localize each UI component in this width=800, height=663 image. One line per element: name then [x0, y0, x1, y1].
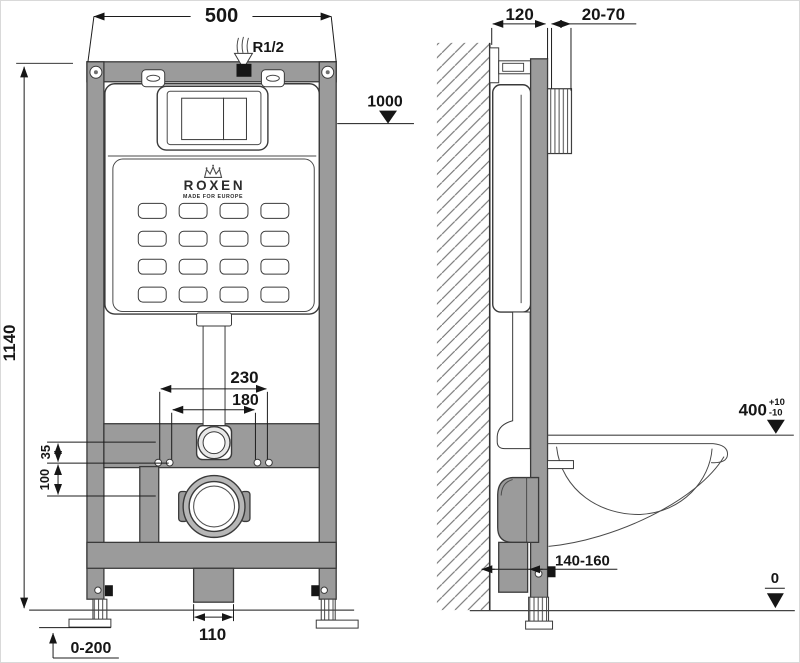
grid-cell	[179, 259, 207, 274]
floor-level-label: 0	[771, 570, 779, 587]
top-bracket	[490, 48, 531, 83]
floor-level-marker	[767, 593, 784, 608]
cistern-module: ROXEN MADE FOR EUROPE	[105, 70, 319, 427]
side-leg-pin	[535, 570, 542, 577]
grid-cell	[220, 231, 248, 246]
crossbar-lower	[87, 542, 336, 568]
bowl-outer-curve	[549, 457, 724, 547]
inner-strut	[140, 467, 159, 544]
center-column	[194, 568, 234, 602]
seat-level-marker	[767, 420, 785, 434]
dim-2070-label: 20-70	[582, 5, 625, 24]
cistern-side	[493, 85, 531, 312]
foot-plate-left	[69, 619, 111, 627]
installation-drawing: ROXEN MADE FOR EUROPE	[1, 1, 799, 662]
dim-500-label: 500	[205, 5, 238, 27]
crown-dot	[212, 165, 214, 167]
mount-tab-right	[261, 70, 284, 87]
elbow-fitting	[197, 426, 232, 460]
brand-tagline: MADE FOR EUROPE	[183, 194, 243, 200]
dim-35-label: 35	[38, 445, 53, 459]
side-foot-stripes	[529, 597, 549, 622]
dim-110-label: 110	[199, 625, 226, 644]
wall-hatching	[437, 43, 490, 610]
flush-button-small	[224, 98, 247, 139]
grid-cell	[261, 203, 289, 218]
drain-elbow	[498, 478, 539, 543]
grid-cell	[179, 231, 207, 246]
fixing-hole	[266, 459, 273, 466]
level-1000-label: 1000	[367, 94, 403, 111]
dim-230-label: 230	[230, 368, 258, 387]
corner-screw-right-center	[326, 70, 330, 74]
fixing-hole	[254, 459, 261, 466]
bowl-inner-curve	[557, 447, 713, 515]
grid-cell	[261, 259, 289, 274]
dim-120-label: 120	[506, 5, 534, 24]
drain-socket-front	[179, 476, 250, 538]
bowl-rim	[548, 444, 728, 463]
frame-rail-right	[319, 62, 336, 599]
seat-height-tol-minus: -10	[769, 408, 783, 419]
dim-1140-label: 1140	[1, 325, 19, 362]
dim-500-ext	[88, 16, 94, 61]
grid-cell	[138, 259, 166, 274]
dim-140160-label: 140-160	[555, 552, 610, 569]
bracket-bolt	[503, 63, 524, 71]
side-view	[437, 43, 794, 629]
grid-cell	[179, 203, 207, 218]
foot-plate-right	[316, 620, 358, 628]
grid-cell	[138, 287, 166, 302]
leg-bolt-left	[105, 585, 113, 596]
grid-cell	[179, 287, 207, 302]
water-inlet	[235, 37, 253, 77]
drain-outlet	[499, 542, 528, 592]
leg-bolt-right	[311, 585, 319, 596]
inlet-valve	[236, 64, 251, 77]
level-1000-marker	[379, 111, 397, 124]
mount-tab-left	[142, 70, 165, 87]
frame-rail-left	[87, 62, 104, 599]
hose-line	[247, 38, 248, 53]
flush-bend-side	[497, 312, 530, 449]
flush-plate-side-stripes	[548, 89, 572, 154]
grid-cell	[261, 231, 289, 246]
dim-500-ext	[331, 16, 336, 61]
side-foot-plate	[526, 621, 553, 629]
dim-100-label: 100	[37, 469, 52, 491]
hose-line	[237, 38, 238, 53]
seat-height-tol-plus: +10	[769, 397, 785, 408]
frame-top-bar	[87, 62, 336, 82]
flush-pipe	[203, 326, 225, 427]
grid-cell	[220, 203, 248, 218]
fixing-rod	[548, 461, 574, 469]
crown-dot	[219, 167, 221, 169]
leg-pin-left	[95, 587, 101, 593]
flush-button-large	[182, 98, 224, 139]
drain-socket-mid	[189, 482, 239, 532]
elbow-fitting-bore	[203, 432, 225, 454]
grid-cell	[138, 231, 166, 246]
corner-screw-left-center	[94, 70, 98, 74]
crown-dot	[206, 167, 208, 169]
grid-cell	[261, 287, 289, 302]
seat-height-label: 400	[739, 401, 767, 420]
water-inlet-label: R1/2	[252, 39, 284, 56]
dim-180-label: 180	[232, 392, 259, 409]
brand-name: ROXEN	[184, 178, 246, 193]
grid-cell	[138, 203, 166, 218]
bracket-plate	[490, 48, 499, 83]
grid-cell	[220, 259, 248, 274]
grid-cell	[220, 287, 248, 302]
bowl-profile	[548, 435, 794, 546]
drawing-canvas: ROXEN MADE FOR EUROPE	[0, 0, 800, 663]
flush-pipe-collar	[197, 313, 232, 326]
leg-pin-right	[321, 587, 327, 593]
front-view: ROXEN MADE FOR EUROPE	[69, 37, 358, 628]
hose-line	[242, 37, 243, 53]
dim-0200-label: 0-200	[71, 640, 112, 657]
